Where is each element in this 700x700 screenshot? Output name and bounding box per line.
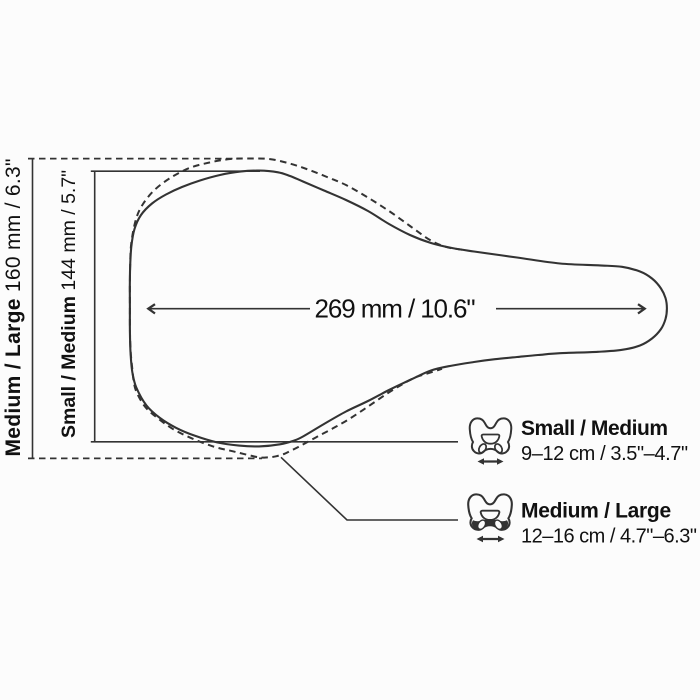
svg-text:Medium / Large: Medium / Large [521, 500, 671, 523]
svg-text:12–16 cm / 4.7"–6.3": 12–16 cm / 4.7"–6.3" [521, 526, 697, 548]
svg-text:Small / Medium 144 mm / 5.7": Small / Medium 144 mm / 5.7" [58, 170, 80, 438]
svg-text:269 mm / 10.6": 269 mm / 10.6" [315, 294, 476, 324]
svg-text:Small / Medium: Small / Medium [521, 417, 668, 440]
svg-text:Medium / Large 160 mm / 6.3": Medium / Large 160 mm / 6.3" [2, 158, 25, 456]
svg-text:9–12 cm / 3.5"–4.7": 9–12 cm / 3.5"–4.7" [521, 443, 688, 465]
